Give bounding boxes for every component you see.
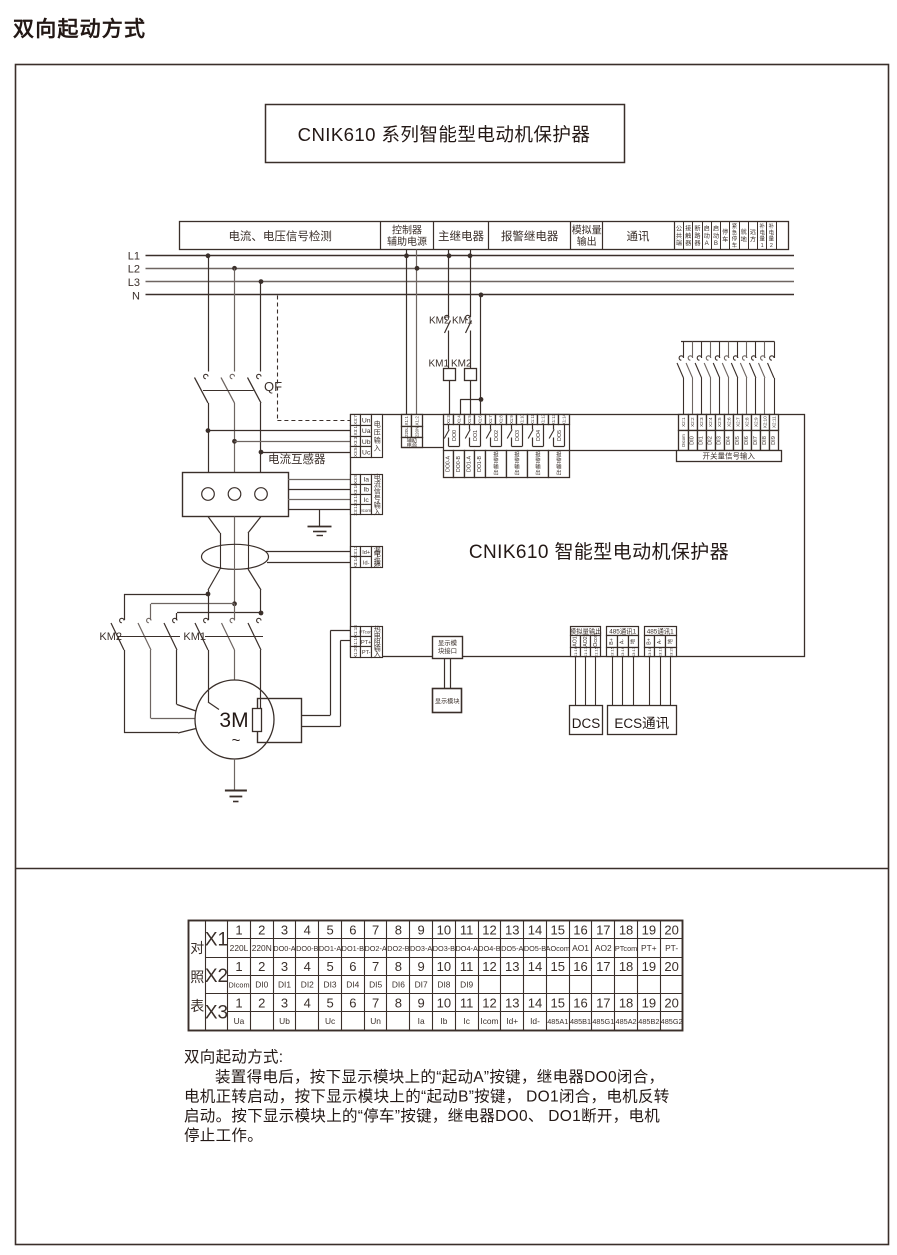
svg-text:Un: Un [362,417,371,424]
svg-text:停车: 停车 [722,228,728,243]
svg-text:2: 2 [258,923,265,938]
svg-text:A-: A- [657,639,663,644]
svg-text:DO0-A: DO0-A [446,456,452,472]
svg-text:DO1-B: DO1-B [477,456,483,472]
svg-text:AO2: AO2 [583,636,589,646]
svg-text:DI6: DI6 [392,980,405,990]
svg-text:QF: QF [264,379,282,394]
svg-text:220L: 220L [230,943,249,953]
svg-text:14: 14 [528,959,542,974]
svg-text:通讯: 通讯 [627,230,650,243]
svg-text:N: N [132,290,140,302]
svg-text:20: 20 [664,959,678,974]
svg-text:补电量2: 补电量2 [769,222,775,249]
svg-text:X1:20: X1:20 [353,645,358,657]
svg-text:报警输出: 报警输出 [535,451,541,477]
svg-text:KM2: KM2 [451,359,472,370]
svg-text:DI9: DI9 [460,980,473,990]
svg-text:2: 2 [258,959,265,974]
svg-text:接触器: 接触器 [685,225,692,247]
svg-text:远方: 远方 [750,228,756,243]
svg-text:控制器: 控制器 [392,224,422,237]
svg-text:19: 19 [642,923,656,938]
svg-text:15: 15 [551,923,565,938]
svg-text:Ua: Ua [234,1016,245,1026]
svg-text:Uc: Uc [325,1016,335,1026]
svg-text:Ia: Ia [418,1016,425,1026]
svg-text:DI2: DI2 [708,436,714,445]
svg-text:Ub: Ub [362,439,371,446]
svg-text:补电量1: 补电量1 [759,222,765,249]
svg-text:X3:18: X3:18 [647,646,652,657]
svg-text:KM2: KM2 [429,316,450,327]
svg-text:10: 10 [437,923,451,938]
svg-text:DI4: DI4 [346,980,359,990]
svg-text:20: 20 [664,995,678,1010]
svg-text:11: 11 [460,959,474,974]
svg-text:1: 1 [235,995,242,1010]
svg-text:X2:8: X2:8 [744,417,749,427]
svg-text:X1:2: X1:2 [414,416,419,426]
svg-text:X2:6: X2:6 [726,417,731,427]
svg-text:18: 18 [619,959,633,974]
svg-text:对照表: 对照表 [190,940,204,1014]
svg-text:5: 5 [326,923,333,938]
svg-text:DI6: DI6 [744,436,750,445]
svg-text:辅助电源: 辅助电源 [387,235,427,248]
svg-text:报警输出: 报警输出 [556,451,562,477]
svg-text:X3:12: X3:12 [353,503,358,515]
svg-text:485B1: 485B1 [570,1017,591,1026]
svg-text:DI7: DI7 [415,980,428,990]
svg-text:8: 8 [395,923,402,938]
svg-text:X1:13: X1:13 [551,413,556,425]
svg-text:DO0-B: DO0-B [456,456,462,472]
svg-text:DI8: DI8 [762,436,768,445]
svg-text:X1:3: X1:3 [446,415,451,424]
svg-text:热电阻输入: 热电阻输入 [374,625,381,659]
svg-text:X1:7: X1:7 [488,415,493,424]
svg-text:12: 12 [482,959,496,974]
svg-text:PTcom: PTcom [615,944,637,953]
svg-text:X2:1: X2:1 [681,417,686,427]
svg-text:DO5-B: DO5-B [524,944,546,953]
svg-text:DO1-A: DO1-A [319,944,341,953]
svg-text:12: 12 [482,995,496,1010]
svg-text:就地: 就地 [741,228,747,243]
svg-text:X3:11: X3:11 [353,493,358,505]
svg-text:X3:15: X3:15 [609,646,614,657]
svg-text:13: 13 [505,959,519,974]
svg-text:开关量信号输入: 开关量信号输入 [703,451,756,461]
svg-text:B+: B+ [609,638,615,645]
svg-text:11: 11 [460,923,474,938]
svg-text:X2: X2 [205,966,228,987]
svg-text:双向起动方式: 双向起动方式 [13,17,146,41]
svg-text:485G1: 485G1 [592,1017,614,1026]
svg-text:9: 9 [418,923,425,938]
svg-text:X2:2: X2:2 [690,417,695,427]
svg-text:显示模块: 显示模块 [435,698,460,706]
svg-text:断路器: 断路器 [694,225,701,247]
svg-text:5: 5 [326,959,333,974]
svg-text:DI0: DI0 [690,436,696,445]
svg-text:Id-: Id- [363,561,370,567]
svg-text:X1: X1 [205,930,228,951]
svg-text:DO1-A: DO1-A [467,456,473,472]
svg-text:DO3-A: DO3-A [410,944,432,953]
svg-text:3: 3 [281,923,288,938]
svg-text:16: 16 [573,923,587,938]
svg-text:DIcom: DIcom [228,981,249,990]
svg-text:DI9: DI9 [771,436,777,445]
svg-text:16: 16 [573,995,587,1010]
svg-text:双向起动方式:: 双向起动方式: [184,1048,283,1066]
svg-text:X1:1: X1:1 [404,416,409,426]
svg-text:4: 4 [304,959,311,974]
svg-text:停止工作。: 停止工作。 [184,1127,263,1145]
svg-text:X1:18: X1:18 [353,625,358,637]
svg-text:DI2: DI2 [301,980,314,990]
svg-text:X1:15: X1:15 [593,646,598,657]
svg-text:CNIK610 智能型电动机保护器: CNIK610 智能型电动机保护器 [469,541,729,563]
svg-text:AO2: AO2 [595,943,612,953]
svg-text:DI5: DI5 [735,436,741,445]
svg-text:19: 19 [642,995,656,1010]
svg-text:X3:7: X3:7 [353,415,358,425]
svg-text:Ib: Ib [363,487,369,494]
svg-text:19: 19 [642,959,656,974]
svg-text:X3:17: X3:17 [631,646,636,657]
svg-text:DO1-B: DO1-B [342,944,364,953]
svg-text:8: 8 [395,959,402,974]
svg-text:X3:16: X3:16 [620,646,625,657]
svg-text:DO2-A: DO2-A [364,944,386,953]
svg-text:X2:5: X2:5 [717,417,722,427]
svg-text:1: 1 [235,923,242,938]
svg-text:ECS通讯: ECS通讯 [614,716,669,731]
svg-text:报警继电器: 报警继电器 [501,229,559,243]
svg-text:启动。按下显示模块上的“停车”按键，继电器DO0、 DO1断: 启动。按下显示模块上的“停车”按键，继电器DO0、 DO1断开，电机 [184,1107,660,1125]
svg-text:电流、电压信号检测: 电流、电压信号检测 [228,229,332,243]
svg-text:电机正转启动，按下显示模块上的“起动B”按键， DO1闭合，: 电机正转启动，按下显示模块上的“起动B”按键， DO1闭合，电机反转 [184,1088,670,1106]
svg-text:A-: A- [620,639,626,644]
svg-text:X3:10: X3:10 [353,483,358,495]
svg-text:Id-: Id- [530,1016,540,1026]
svg-text:13: 13 [505,923,519,938]
svg-text:X3:3: X3:3 [353,436,358,446]
svg-text:Un: Un [370,1016,381,1026]
svg-text:DI0: DI0 [255,980,268,990]
svg-text:L1: L1 [128,251,140,263]
svg-text:输出: 输出 [577,235,597,248]
svg-text:L3: L3 [128,277,140,289]
svg-text:报警输出: 报警输出 [514,451,520,477]
svg-text:X3:9: X3:9 [353,474,358,484]
svg-text:10: 10 [437,995,451,1010]
svg-text:X1:4: X1:4 [457,415,462,424]
svg-text:Id+: Id+ [362,550,370,556]
svg-text:9: 9 [418,995,425,1010]
svg-text:Icom: Icom [361,508,371,513]
svg-text:X1:14: X1:14 [562,413,567,425]
svg-text:DIcom: DIcom [681,434,686,447]
svg-text:DI5: DI5 [369,980,382,990]
svg-text:X3:20: X3:20 [668,646,673,657]
svg-text:X1:16: X1:16 [573,646,578,657]
svg-text:DI1: DI1 [278,980,291,990]
svg-text:DO2-B: DO2-B [387,944,409,953]
svg-text:17: 17 [596,923,610,938]
svg-text:装置得电后，按下显示模块上的“起动A”按键，继电器DO0闭合: 装置得电后，按下显示模块上的“起动A”按键，继电器DO0闭合， [215,1068,664,1086]
svg-text:DI3: DI3 [717,436,723,445]
svg-text:PT+: PT+ [361,640,371,646]
svg-text:X2:4: X2:4 [708,417,713,427]
svg-text:Uc: Uc [362,450,371,457]
svg-text:X1:9: X1:9 [509,415,514,424]
svg-text:14: 14 [528,923,542,938]
svg-text:X1:6: X1:6 [478,415,483,424]
svg-text:11: 11 [460,995,474,1010]
svg-text:485G2: 485G2 [661,1017,683,1026]
svg-text:485B2: 485B2 [638,1017,659,1026]
svg-text:DO4-A: DO4-A [456,944,478,953]
svg-text:Icom: Icom [480,1016,498,1026]
svg-text:485通讯1: 485通讯1 [609,626,636,635]
svg-text:12: 12 [482,923,496,938]
svg-text:X1:19: X1:19 [353,635,358,647]
svg-text:X2:10: X2:10 [762,416,767,428]
svg-text:主继电器: 主继电器 [438,230,484,243]
svg-text:~: ~ [232,732,241,749]
svg-text:紧急停车: 紧急停车 [732,222,738,249]
svg-text:15: 15 [551,959,565,974]
svg-text:X1:8: X1:8 [499,415,504,424]
svg-text:14: 14 [528,995,542,1010]
svg-text:6: 6 [349,995,356,1010]
svg-text:地: 地 [666,639,674,644]
svg-text:485A1: 485A1 [547,1017,568,1026]
svg-text:X2:11: X2:11 [772,416,777,428]
svg-text:DI7: DI7 [753,436,759,445]
svg-text:18: 18 [619,995,633,1010]
svg-text:DO4: DO4 [536,430,542,441]
svg-text:X3:19: X3:19 [658,646,663,657]
svg-text:电压输入: 电压输入 [374,420,381,453]
svg-text:块接口: 块接口 [438,646,457,655]
svg-text:Ic: Ic [364,497,370,504]
svg-text:漏电/接地: 漏电/接地 [374,545,381,569]
svg-text:9: 9 [418,959,425,974]
svg-text:KM1: KM1 [428,359,449,370]
svg-text:6: 6 [349,959,356,974]
svg-text:X1:17: X1:17 [583,646,588,657]
svg-text:1: 1 [235,959,242,974]
svg-text:10: 10 [437,959,451,974]
svg-text:4: 4 [304,923,311,938]
svg-text:DO5: DO5 [557,430,563,441]
svg-text:DO1: DO1 [473,430,479,441]
svg-text:18: 18 [619,923,633,938]
svg-text:Ua: Ua [362,428,371,435]
svg-text:DI8: DI8 [437,980,450,990]
svg-text:L2: L2 [128,264,140,276]
svg-text:5: 5 [326,995,333,1010]
svg-text:485通讯1: 485通讯1 [647,626,674,635]
svg-text:X3: X3 [205,1003,228,1024]
svg-text:DI3: DI3 [324,980,337,990]
svg-text:DO0-B: DO0-B [296,944,318,953]
svg-text:X2:9: X2:9 [753,417,758,427]
svg-text:KM1: KM1 [452,316,473,327]
svg-text:3M: 3M [219,709,248,732]
svg-text:DO3: DO3 [515,430,521,441]
svg-text:DI4: DI4 [726,436,732,445]
svg-text:电流信号输入: 电流信号输入 [374,473,381,517]
svg-text:4: 4 [304,995,311,1010]
svg-text:Ia: Ia [363,476,369,483]
svg-text:PT+: PT+ [641,943,657,953]
svg-text:220L: 220L [404,427,409,437]
svg-text:X1:12: X1:12 [541,413,546,425]
svg-text:Ub: Ub [279,1016,290,1026]
svg-text:启动A: 启动A [704,225,710,247]
svg-text:15: 15 [551,995,565,1010]
svg-text:7: 7 [372,995,379,1010]
svg-text:KM1: KM1 [183,631,206,643]
svg-text:Id+: Id+ [506,1016,518,1026]
svg-text:X3:5: X3:5 [353,447,358,457]
svg-text:DO0-A: DO0-A [273,944,295,953]
svg-text:220N: 220N [252,943,272,953]
svg-text:AO1: AO1 [573,636,579,646]
svg-text:DO3-B: DO3-B [433,944,455,953]
svg-text:DO2: DO2 [494,430,500,441]
svg-text:DO5-A: DO5-A [501,944,523,953]
svg-text:DI1: DI1 [699,436,705,445]
svg-text:6: 6 [349,923,356,938]
svg-text:X1:5: X1:5 [467,415,472,424]
svg-text:X1:11: X1:11 [530,414,535,425]
svg-text:模拟量: 模拟量 [572,224,602,237]
svg-text:PT-: PT- [362,650,371,656]
svg-text:X2:3: X2:3 [699,417,704,427]
svg-text:20: 20 [664,923,678,938]
svg-text:485A2: 485A2 [616,1017,637,1026]
svg-text:DCS: DCS [572,716,601,731]
svg-text:17: 17 [596,959,610,974]
svg-text:AOcom: AOcom [546,944,570,953]
svg-text:220N: 220N [414,427,419,438]
svg-text:17: 17 [596,995,610,1010]
svg-text:13: 13 [505,995,519,1010]
svg-text:X3:1: X3:1 [353,426,358,436]
svg-text:报警输出: 报警输出 [493,451,499,477]
svg-text:7: 7 [372,959,379,974]
svg-text:2: 2 [258,995,265,1010]
svg-text:Ib: Ib [440,1016,447,1026]
svg-text:3: 3 [281,959,288,974]
svg-text:显示模: 显示模 [438,638,458,647]
svg-text:AO1: AO1 [572,943,589,953]
svg-text:16: 16 [573,959,587,974]
svg-text:地: 地 [628,639,636,644]
svg-text:3: 3 [281,995,288,1010]
svg-text:X1:10: X1:10 [520,413,525,425]
svg-text:7: 7 [372,923,379,938]
svg-text:电流互感器: 电流互感器 [268,452,326,466]
svg-text:DO4-B: DO4-B [478,944,500,953]
svg-text:启动B: 启动B [713,225,719,247]
svg-text:PT-: PT- [665,943,678,953]
svg-text:CNIK610 系列智能型电动机保护器: CNIK610 系列智能型电动机保护器 [298,124,591,145]
svg-text:X3:13: X3:13 [353,545,358,557]
svg-text:X3:14: X3:14 [353,556,358,568]
svg-text:Ic: Ic [463,1016,470,1026]
svg-text:8: 8 [395,995,402,1010]
svg-text:公共端: 公共端 [676,226,682,247]
svg-text:B+: B+ [646,638,652,645]
svg-text:X2:7: X2:7 [735,417,740,427]
svg-text:DO0: DO0 [452,430,458,441]
